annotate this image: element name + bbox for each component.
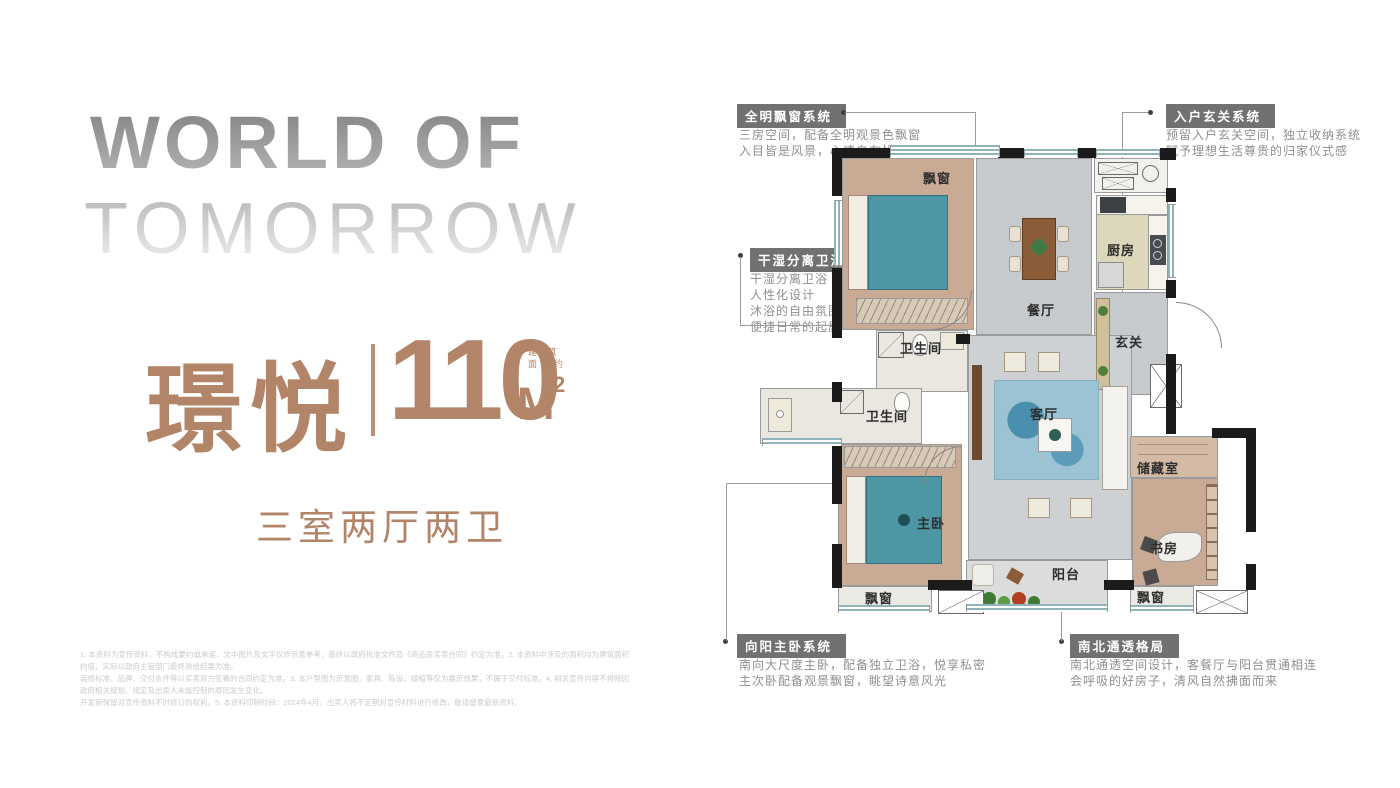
- bookshelf: [1206, 484, 1218, 580]
- leader-line: [1122, 112, 1148, 113]
- armchair: [1028, 498, 1050, 518]
- fridge: [1098, 262, 1124, 288]
- label-master: 主卧: [917, 513, 945, 532]
- callout-entry-title: 入户玄关系统: [1166, 104, 1275, 128]
- wall-segment: [832, 544, 842, 588]
- window-bath-annex: [762, 438, 842, 446]
- headline-world-of: WORLD OF: [90, 100, 525, 185]
- wall-segment: [1160, 148, 1176, 160]
- label-study: 书房: [1150, 538, 1178, 557]
- burner-icon: [1153, 239, 1162, 248]
- entry-door-arc: [1176, 302, 1222, 348]
- plant-icon: [1098, 366, 1108, 376]
- wall-segment: [832, 268, 842, 338]
- bay-box-right: [1196, 590, 1248, 614]
- wall-segment: [1246, 564, 1256, 590]
- callout-bath-line: 沐浴的自由氛围: [750, 303, 841, 319]
- title-divider: [371, 344, 375, 436]
- sofa: [1102, 386, 1128, 490]
- wall-segment: [832, 440, 842, 504]
- wall-segment: [998, 148, 1024, 158]
- label-bath-top: 卫生间: [900, 338, 942, 357]
- sink-icon: [776, 410, 784, 418]
- wall-segment: [956, 334, 970, 344]
- callout-northsouth-line: 南北通透空间设计，客餐厅与阳台贯通相连: [1070, 657, 1317, 673]
- callout-bath-line: 干湿分离卫浴: [750, 271, 828, 287]
- wall-segment: [928, 580, 972, 590]
- wall-segment: [1104, 580, 1134, 590]
- window-dining: [1024, 149, 1078, 157]
- dining-chair: [1009, 256, 1021, 272]
- room-layout-text: 三室两厅两卫: [256, 497, 508, 551]
- disclaimer-line: 装修标准、品牌、交付条件等以买卖双方签署的合同约定为准。3. 本户型图为示意图，…: [80, 673, 636, 697]
- bed2-pillows: [848, 195, 868, 290]
- area-unit-sup: 2: [553, 372, 565, 398]
- burner-icon: [1153, 251, 1162, 260]
- area-note-line2: 面积约: [528, 358, 567, 370]
- label-foyer: 玄关: [1115, 332, 1143, 351]
- label-bath-left: 卫生间: [866, 406, 908, 425]
- label-kitchen: 厨房: [1107, 240, 1135, 259]
- label-living: 客厅: [1030, 404, 1058, 423]
- callout-bath-line: 便捷日常的起居: [750, 319, 841, 335]
- bed2-blanket: [868, 195, 948, 290]
- table-decor: [1049, 429, 1061, 441]
- disclaimer-line: 开发商保留对宣传资料不时修订的权利。5. 本资料印制时间：2024年4月，出卖人…: [80, 697, 636, 709]
- disclaimer-line: 1. 本资料为宣传资料，不构成要约或承诺，文中图片及文字仅作示意参考，最终以政府…: [80, 649, 636, 673]
- callout-bath-line: 人性化设计: [750, 287, 815, 303]
- wall-segment: [832, 148, 842, 196]
- wall-segment: [1166, 354, 1176, 434]
- label-bay-bottom-right: 飘窗: [1137, 587, 1165, 606]
- storage-shelf-line: [1138, 454, 1208, 455]
- callout-northsouth-line: 会呼吸的好房子，清风自然拂面而来: [1070, 673, 1278, 689]
- leader-line: [726, 483, 727, 641]
- label-bay-window-top: 飘窗: [923, 168, 951, 187]
- master-bed-pillows: [846, 476, 866, 564]
- dining-chair: [1009, 226, 1021, 242]
- callout-bay-window-title: 全明飘窗系统: [737, 104, 846, 128]
- leader-dot: [1148, 110, 1153, 115]
- window-bedroom2-left: [834, 200, 842, 266]
- dining-chair: [1057, 256, 1069, 272]
- label-storage: 储藏室: [1137, 458, 1179, 477]
- callout-northsouth-title: 南北通透格局: [1070, 634, 1179, 658]
- leader-line: [726, 483, 843, 484]
- floor-plan: 飘窗 餐厅 厨房 玄关 卫生间 客厅 卫生间 主卧 储藏室 书房 阳台 飘窗 飘…: [832, 140, 1264, 628]
- label-dining: 餐厅: [1027, 300, 1055, 319]
- shower-symbol: [840, 390, 864, 414]
- armchair: [1004, 352, 1026, 372]
- wall-segment: [1166, 188, 1176, 202]
- headline-tomorrow: TOMORROW: [84, 188, 583, 270]
- area-note-line1: 建 筑: [528, 346, 567, 358]
- window-kitchen-top: [1096, 149, 1160, 157]
- wall-segment: [1166, 280, 1176, 298]
- washer-symbol: [1142, 165, 1159, 182]
- callout-master-line: 南向大尺度主卧，配备独立卫浴，悦享私密: [739, 657, 986, 673]
- leader-line: [845, 112, 976, 113]
- callout-master-line: 主次卧配备观景飘窗，眺望诗意风光: [739, 673, 947, 689]
- armchair: [1038, 352, 1060, 372]
- armchair: [1070, 498, 1092, 518]
- legal-disclaimer: 1. 本资料为宣传资料，不构成要约或承诺，文中图片及文字仅作示意参考，最终以政府…: [80, 649, 636, 709]
- window-balcony: [966, 604, 1108, 612]
- bed-decor: [898, 514, 910, 526]
- label-bay-bottom-left: 飘窗: [865, 588, 893, 607]
- storage-shelf-line: [1138, 444, 1208, 445]
- plant-icon: [1098, 306, 1108, 316]
- entry-wardrobe-box: [1098, 162, 1138, 175]
- kitchen-appliance: [1100, 197, 1126, 213]
- wall-segment: [1246, 428, 1256, 532]
- dining-chair: [1057, 226, 1069, 242]
- entry-wardrobe-box: [1102, 177, 1134, 190]
- leader-line: [740, 257, 741, 325]
- area-note: 建 筑 面积约: [528, 346, 567, 370]
- tv-cabinet: [972, 365, 982, 460]
- window-bay-top: [890, 145, 1000, 157]
- window-kitchen-right: [1168, 204, 1176, 278]
- window-study-bay: [1130, 605, 1194, 613]
- poster: WORLD OF TOMORROW 璟悦 110 M 2 建 筑 面积约 三室两…: [0, 0, 1400, 788]
- wall-segment: [832, 382, 842, 402]
- area-unit: M: [517, 381, 555, 426]
- callout-master-title: 向阳主卧系统: [737, 634, 846, 658]
- wall-segment: [1078, 148, 1096, 158]
- label-balcony: 阳台: [1052, 564, 1080, 583]
- product-name: 璟悦: [145, 330, 355, 471]
- balcony-stool: [972, 564, 994, 586]
